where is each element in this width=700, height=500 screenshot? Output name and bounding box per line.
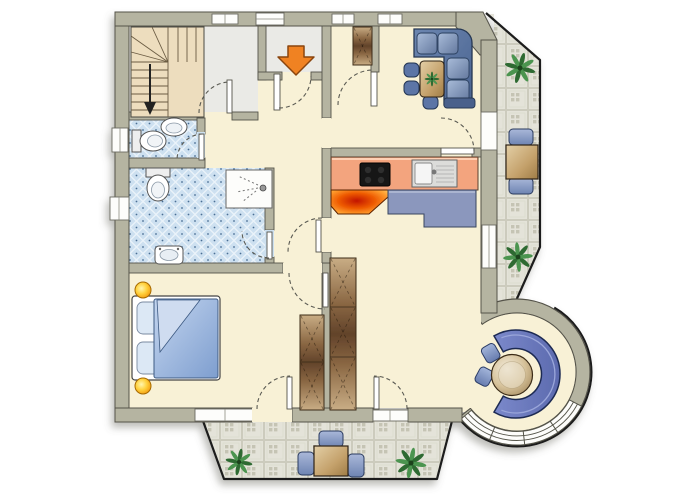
chair — [404, 81, 419, 95]
wall-segment — [115, 12, 473, 26]
door-leaf — [371, 72, 377, 106]
lamp — [135, 378, 151, 394]
door-leaf — [227, 80, 232, 113]
wall-segment — [331, 148, 441, 157]
terrace-door-opening — [481, 112, 497, 150]
kitchen-sink — [412, 160, 457, 187]
chair — [404, 63, 419, 77]
wc-toilet — [132, 130, 166, 152]
door-leaf — [199, 134, 204, 160]
table-plant-icon — [425, 72, 440, 87]
wall-segment — [481, 40, 497, 313]
wall-segment — [197, 118, 205, 134]
sofa-cushion — [438, 33, 458, 54]
entry-closet — [353, 27, 372, 65]
window — [110, 197, 129, 220]
lamp — [135, 282, 151, 298]
door-leaf — [374, 377, 379, 409]
terrace-chair — [509, 178, 533, 194]
terrace-chair — [509, 129, 533, 145]
chair — [423, 96, 438, 109]
wall-segment — [408, 408, 462, 422]
door-leaf — [441, 148, 474, 154]
door-leaf — [323, 273, 328, 307]
passage-gap — [322, 118, 331, 148]
door-gap — [252, 408, 292, 422]
bay-table — [492, 355, 533, 396]
floor-plan-page — [0, 0, 700, 500]
floor-plan-drawing — [0, 0, 700, 500]
shower — [226, 170, 272, 208]
door-leaf — [274, 74, 280, 110]
sofa-cushion — [447, 58, 469, 79]
double-bed — [132, 296, 220, 380]
sofa-cushion — [417, 33, 437, 54]
coffee-table — [420, 61, 444, 97]
wall-segment — [232, 112, 258, 120]
cooktop — [360, 163, 390, 186]
wall-segment — [322, 148, 331, 218]
wall-segment — [129, 263, 283, 273]
hall-wardrobe — [330, 258, 356, 410]
building-group — [110, 12, 591, 485]
bath-washbasin — [155, 246, 183, 264]
wall-segment — [311, 72, 323, 80]
side-terrace-table — [506, 145, 538, 179]
terrace-door-opening — [373, 410, 408, 421]
wall-segment — [129, 158, 205, 168]
door-leaf — [287, 377, 292, 409]
terrace-chair — [298, 452, 314, 475]
door-gap — [322, 218, 331, 252]
staircase — [131, 27, 204, 117]
lower-terrace-table — [314, 446, 348, 476]
terrace-chair — [319, 431, 343, 447]
terrace-chair — [348, 454, 364, 477]
bedroom-wardrobe — [300, 315, 324, 410]
door-leaf — [316, 220, 321, 252]
door-gap — [283, 263, 322, 273]
door-leaf — [267, 232, 272, 259]
wall-segment — [322, 26, 331, 118]
wc-washbasin — [161, 118, 187, 136]
bath-toilet — [146, 168, 170, 201]
sofa-armrest — [444, 98, 475, 108]
